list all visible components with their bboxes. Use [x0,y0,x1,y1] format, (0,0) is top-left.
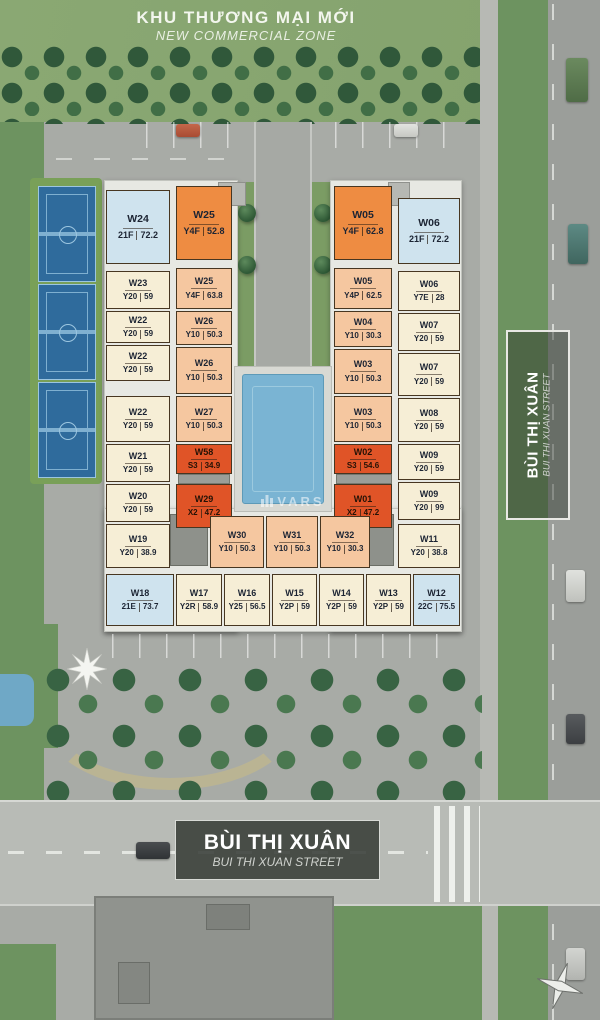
unit-w09-b: W09Y2099 [398,482,460,520]
unit-id: W02 [350,448,377,460]
unit-divider [140,293,141,302]
top-road-lane-line [56,158,246,160]
unit-id: W05 [350,277,377,289]
unit-spec: Y2059 [123,328,153,339]
unit-divider [431,504,432,513]
unit-w11: W11Y2038.8 [398,524,460,568]
unit-spec: Y1050.3 [186,420,223,431]
unit-w06-b: W06Y7E28 [398,271,460,311]
unit-w06-a: W0621F72.2 [398,198,460,264]
unit-area: 50.3 [207,422,223,430]
unit-type: Y20 [123,422,137,430]
unit-w09-a: W09Y2059 [398,444,460,480]
unit-type: Y10 [345,375,359,383]
unit-divider [140,366,141,375]
unit-id: W07 [416,363,443,375]
unit-w22-c: W22Y2059 [106,396,170,442]
unit-spec: Y2059 [123,364,153,375]
unit-divider [198,603,199,612]
unit-spec: Y1050.3 [219,543,256,554]
unit-spec: Y1030.3 [327,543,364,554]
unit-divider [436,603,437,612]
unit-area: 54.6 [364,462,380,470]
unit-type: Y20 [414,335,428,343]
unit-divider [362,374,363,383]
unit-spec: Y1050.3 [274,543,311,554]
unit-divider [203,422,204,431]
unit-id: W30 [224,531,251,543]
unit-w05-b: W05Y4P62.5 [334,268,392,309]
unit-area: 75.5 [440,603,456,611]
unit-type: 21E [122,603,136,611]
street-sign-right: BÙI THỊ XUÂN BUI THI XUAN STREET [506,330,570,520]
unit-spec: 21F72.2 [118,229,158,240]
unit-area: 59 [301,603,310,611]
unit-area: 59 [435,335,444,343]
unit-spec: Y2099 [414,502,444,513]
unit-w23: W23Y2059 [106,271,170,309]
unit-w12: W1222C75.5 [413,574,460,626]
unit-area: 59 [395,603,404,611]
plaza-pond [0,674,34,726]
street-sign-bottom: BÙI THỊ XUÂN BUI THI XUAN STREET [175,820,380,880]
unit-spec: Y1050.3 [345,372,382,383]
unit-w32: W32Y1030.3 [320,516,370,568]
unit-id: W18 [127,589,154,601]
unit-w05-a: W05Y4F62.8 [334,186,392,260]
unit-spec: Y2P59 [326,601,357,612]
unit-divider [360,462,361,471]
unit-spec: Y2P59 [373,601,404,612]
unit-divider [344,603,345,612]
unit-type: Y4F [183,227,200,236]
unit-spec: Y4P62.5 [344,289,382,300]
unit-divider [297,603,298,612]
unit-spec: S334.9 [188,460,220,471]
unit-divider [140,466,141,475]
unit-w18: W1821E73.7 [106,574,174,626]
unit-id: W03 [350,408,377,420]
unit-w27: W27Y1050.3 [176,396,232,442]
unit-type: 22C [418,603,433,611]
unit-spec: S354.6 [347,460,379,471]
unit-w02: W02S354.6 [334,444,392,474]
unit-id: W22 [125,408,152,420]
unit-id: W13 [375,589,402,601]
unit-divider [362,291,363,300]
unit-id: W09 [416,451,443,463]
unit-id: W24 [123,214,153,229]
unit-id: W31 [279,531,306,543]
unit-type: Y20 [411,549,425,557]
unit-divider [236,545,237,554]
unit-w03-b: W03Y1050.3 [334,396,392,442]
street-name-en: BUI THI XUAN STREET [212,855,342,869]
unit-area: 62.5 [366,292,382,300]
unit-area: 56.5 [250,603,266,611]
unit-w03-a: W03Y1050.3 [334,349,392,394]
entrance-driveway [254,122,312,368]
unit-divider [201,509,202,518]
watermark: VARS [238,492,348,510]
unit-divider [431,465,432,474]
unit-w15: W15Y2P59 [272,574,317,626]
crosswalk [434,806,480,902]
car [566,714,585,744]
unit-w04: W04Y1030.3 [334,311,392,347]
unit-w08: W08Y2059 [398,398,460,442]
unit-area: 72.2 [140,231,158,240]
unit-id: W17 [186,589,213,601]
unit-id: W25 [191,277,218,289]
unit-id: W04 [350,318,377,330]
unit-type: Y20 [414,378,428,386]
unit-id: W22 [125,316,152,328]
unit-area: 99 [435,504,444,512]
commercial-zone-label: KHU THƯƠNG MẠI MỚI NEW COMMERCIAL ZONE [0,8,492,43]
basketball-court [38,186,96,282]
unit-type: Y20 [123,366,137,374]
unit-area: 50.3 [366,375,382,383]
unit-type: Y7E [413,294,428,302]
unit-area: 52.8 [207,227,225,236]
unit-w22-a: W22Y2059 [106,311,170,343]
unit-type: S3 [188,462,198,470]
unit-area: 59 [435,423,444,431]
unit-id: W15 [281,589,308,601]
unit-w25-a: W25Y4F52.8 [176,186,232,260]
tree [238,256,256,274]
unit-type: Y2R [180,603,196,611]
unit-w31: W31Y1050.3 [266,516,318,568]
unit-area: 62.8 [366,227,384,236]
unit-divider [140,330,141,339]
unit-type: Y10 [219,545,233,553]
unit-divider [431,423,432,432]
unit-w21: W21Y2059 [106,444,170,482]
unit-spec: Y2038.8 [411,547,448,558]
unit-area: 50.3 [207,374,223,382]
unit-spec: 22C75.5 [418,601,455,612]
street-name: BÙI THỊ XUÂN [524,372,541,479]
tree [238,204,256,222]
unit-w30: W30Y1050.3 [210,516,264,568]
unit-spec: 21F72.2 [409,233,449,244]
unit-w07-a: W07Y2059 [398,313,460,351]
unit-divider [428,549,429,558]
unit-type: 21F [409,235,425,244]
unit-spec: Y2059 [123,504,153,515]
basketball-court [38,382,96,478]
unit-id: W16 [234,589,261,601]
unit-w24: W2421F72.2 [106,190,170,264]
unit-type: X2 [188,509,198,517]
unit-type: Y2P [373,603,388,611]
unit-id: W08 [416,409,443,421]
car [394,124,418,137]
unit-area: 58.9 [202,603,218,611]
unit-type: Y20 [120,549,134,557]
unit-id: W21 [125,452,152,464]
bottom-green-right [334,906,482,1020]
unit-id: W23 [125,279,152,291]
unit-spec: Y7E28 [413,292,444,303]
unit-spec: Y4F52.8 [183,225,224,236]
unit-divider [362,422,363,431]
unit-type: Y10 [345,332,359,340]
unit-spec: Y2059 [123,464,153,475]
unit-spec: Y4F63.8 [185,289,222,300]
unit-w19: W19Y2038.9 [106,524,170,568]
car [566,570,585,602]
unit-id: W25 [189,210,219,225]
truck [568,224,588,264]
unit-divider [391,603,392,612]
unit-spec: Y2059 [414,375,444,386]
unit-w17: W17Y2R58.9 [176,574,222,626]
unit-type: Y20 [123,293,137,301]
unit-w22-b: W22Y2059 [106,345,170,381]
unit-divider [203,227,204,236]
unit-divider [431,377,432,386]
unit-divider [203,373,204,382]
unit-divider [137,549,138,558]
unit-area: 63.8 [207,292,223,300]
unit-type: Y25 [229,603,243,611]
unit-id: W26 [191,317,218,329]
unit-type: Y10 [186,331,200,339]
unit-area: 72.2 [431,235,449,244]
unit-area: 28 [436,294,445,302]
unit-divider [203,291,204,300]
unit-spec: Y1050.3 [186,371,223,382]
unit-id: W01 [350,495,377,507]
unit-area: 50.3 [366,422,382,430]
commercial-zone-subtitle: NEW COMMERCIAL ZONE [156,28,337,43]
site-plan-map: KHU THƯƠNG MẠI MỚI NEW COMMERCIAL ZONE V… [0,0,600,1020]
unit-divider [362,332,363,341]
unit-id: W14 [328,589,355,601]
unit-area: 34.9 [205,462,221,470]
watermark-text: VARS [277,494,324,509]
unit-w20: W20Y2059 [106,484,170,522]
unit-area: 59 [435,465,444,473]
unit-area: 59 [144,293,153,301]
unit-area: 50.3 [207,331,223,339]
unit-divider [140,422,141,431]
unit-id: W26 [191,359,218,371]
unit-w16: W16Y2556.5 [224,574,270,626]
unit-spec: Y2P59 [279,601,310,612]
unit-area: 38.8 [432,549,448,557]
unit-area: 73.7 [143,603,159,611]
unit-w26-a: W26Y1050.3 [176,311,232,345]
unit-area: 59 [144,366,153,374]
unit-area: 30.3 [348,545,364,553]
unit-type: Y10 [186,422,200,430]
unit-id: W11 [416,535,442,547]
unit-id: W58 [191,448,218,460]
unit-w25-b: W25Y4F63.8 [176,268,232,309]
unit-id: W07 [416,321,443,333]
unit-type: Y20 [414,423,428,431]
unit-spec: Y1050.3 [345,420,382,431]
rooftop-unit [118,962,150,1004]
unit-spec: Y2059 [414,463,444,474]
unit-spec: Y2059 [123,291,153,302]
unit-type: Y20 [414,465,428,473]
unit-area: 30.3 [366,332,382,340]
unit-id: W22 [125,352,152,364]
unit-spec: Y2038.9 [120,547,157,558]
rooftop-unit [206,904,250,930]
elevator-core-left [178,474,230,484]
unit-w13: W13Y2P59 [366,574,411,626]
bottom-green-left [0,944,56,1020]
watermark-building-icon [261,495,273,507]
commercial-zone-title: KHU THƯƠNG MẠI MỚI [136,8,355,28]
pool-inner-line [252,386,314,492]
unit-id: W03 [350,360,377,372]
unit-type: Y2P [326,603,341,611]
unit-id: W05 [348,210,378,225]
unit-divider [344,545,345,554]
unit-id: W09 [416,490,443,502]
unit-spec: Y2059 [414,333,444,344]
unit-w07-b: W07Y2059 [398,353,460,396]
unit-id: W06 [414,218,444,233]
unit-divider [362,227,363,236]
unit-id: W27 [191,408,218,420]
unit-type: Y20 [123,466,137,474]
unit-divider [203,331,204,340]
unit-area: 59 [144,422,153,430]
unit-area: 59 [435,378,444,386]
street-name: BÙI THỊ XUÂN [204,831,351,855]
unit-spec: Y2059 [414,421,444,432]
unit-type: Y10 [274,545,288,553]
elevator-core-right [336,474,392,484]
car [176,124,200,137]
unit-type: Y20 [123,330,137,338]
unit-divider [246,603,247,612]
unit-divider [427,235,428,244]
unit-id: W29 [191,495,218,507]
unit-type: Y4F [185,292,200,300]
unit-spec: Y1030.3 [345,330,382,341]
unit-divider [431,335,432,344]
unit-type: Y10 [345,422,359,430]
unit-type: Y20 [414,504,428,512]
top-tree-row [0,44,484,124]
unit-divider [291,545,292,554]
unit-id: W12 [423,589,450,601]
unit-id: W06 [416,280,443,292]
unit-divider [201,462,202,471]
unit-spec: Y4F62.8 [342,225,383,236]
basketball-court [38,284,96,380]
unit-area: 59 [144,506,153,514]
plaza-tree-band [42,664,482,806]
unit-spec: Y2059 [123,420,153,431]
unit-id: W32 [332,531,359,543]
unit-divider [432,294,433,303]
unit-area: 50.3 [295,545,311,553]
unit-area: 38.9 [141,549,157,557]
unit-area: 59 [144,466,153,474]
unit-area: 59 [348,603,357,611]
unit-type: Y10 [186,374,200,382]
unit-w26-b: W26Y1050.3 [176,347,232,394]
unit-spec: Y2R58.9 [180,601,218,612]
unit-id: W20 [125,492,152,504]
street-name-en: BUI THI XUAN STREET [541,372,552,479]
unit-w58: W58S334.9 [176,444,232,474]
unit-area: 50.3 [240,545,256,553]
unit-type: Y20 [123,506,137,514]
unit-type: Y4F [342,227,359,236]
unit-spec: Y2556.5 [229,601,266,612]
car [136,842,170,859]
truck [566,58,588,102]
unit-type: S3 [347,462,357,470]
unit-spec: Y1050.3 [186,329,223,340]
unit-w14: W14Y2P59 [319,574,364,626]
unit-area: 59 [144,330,153,338]
unit-divider [139,603,140,612]
unit-type: Y10 [327,545,341,553]
unit-id: W19 [125,535,152,547]
unit-divider [136,231,137,240]
unit-type: 21F [118,231,134,240]
unit-type: Y2P [279,603,294,611]
unit-spec: 21E73.7 [122,601,159,612]
unit-type: Y4P [344,292,359,300]
unit-divider [140,506,141,515]
